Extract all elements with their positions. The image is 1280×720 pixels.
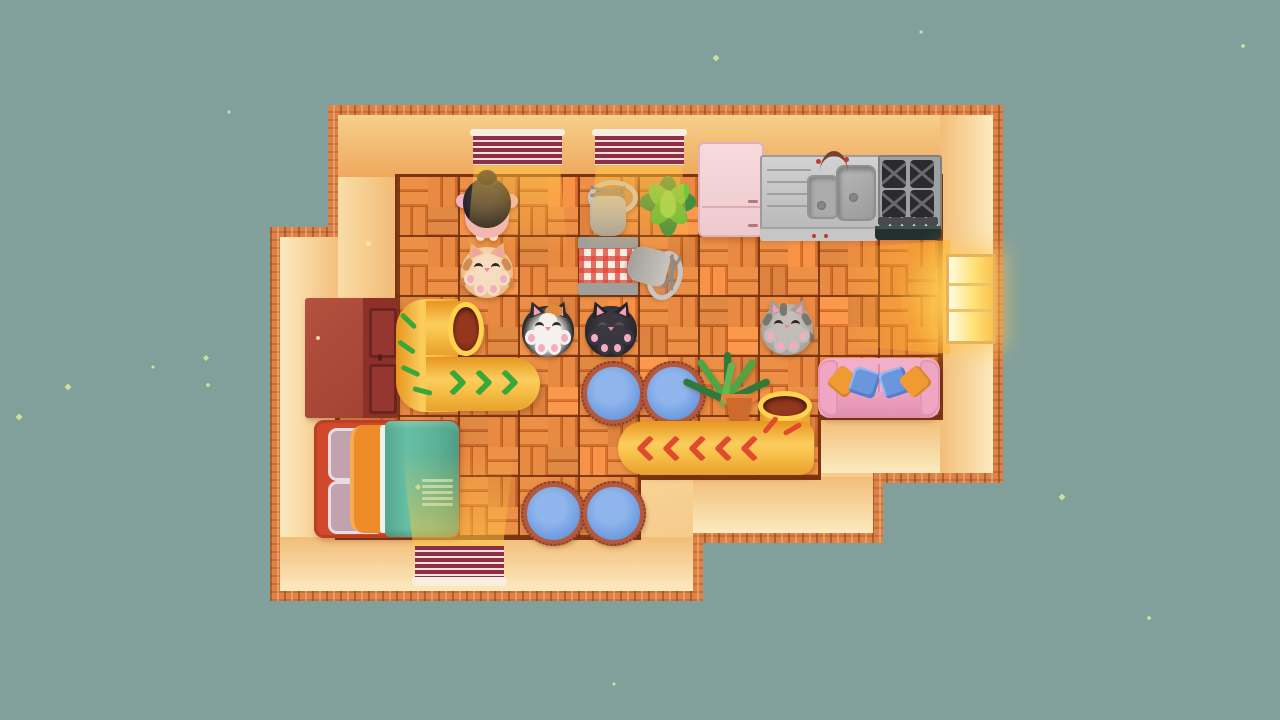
floor-cell: [938, 267, 940, 297]
floor-cell: [548, 387, 578, 417]
kitchen-sink: [760, 153, 878, 239]
calico-cat[interactable]: [519, 299, 577, 357]
sink-drain: [817, 201, 826, 210]
game-scene: [0, 0, 1280, 720]
floor-cell: [548, 237, 578, 267]
floor-cell: [818, 267, 848, 297]
blind-bar: [470, 129, 565, 136]
floor-cell: [878, 297, 908, 327]
window-pane-divider: [949, 309, 993, 312]
floor-cell: [698, 237, 728, 267]
oven-front: [875, 226, 941, 240]
stove-burner: [910, 190, 934, 218]
wardrobe-door-panel: [369, 364, 397, 414]
stove-burner: [882, 190, 906, 218]
faucet-knob: [844, 157, 849, 162]
cat-closed-eye: [474, 263, 483, 272]
floor-cell: [548, 267, 578, 297]
blind-bar: [592, 129, 687, 136]
cat-tunnel-red[interactable]: [618, 391, 814, 475]
cabinet-knob: [812, 234, 816, 238]
sink-basin-small: [807, 175, 838, 219]
sparkle-star: [612, 682, 616, 686]
drainboard-lines: [767, 169, 811, 217]
floor-cell: [458, 447, 488, 477]
floor-cell: [638, 327, 668, 357]
person-hair-bun: [477, 170, 497, 188]
floor-cell: [758, 267, 788, 297]
floor-cell: [908, 297, 938, 327]
cat-closed-eye: [535, 322, 544, 331]
wardrobe-front: [363, 298, 398, 418]
cat-paw: [535, 340, 548, 355]
stove-burner: [882, 160, 906, 188]
stove-burner: [910, 160, 934, 188]
window-light-stripe: [422, 479, 453, 482]
floor-cushion[interactable]: [521, 481, 586, 546]
fridge-divider: [702, 206, 760, 208]
floor-cell: [488, 477, 518, 507]
cat-paw: [548, 340, 561, 355]
wall-sparkle-dot: [366, 241, 371, 246]
cat-closed-eye: [491, 263, 500, 272]
cat-paw: [787, 338, 800, 353]
wall-band-step: [693, 477, 873, 533]
cat-closed-eye: [552, 322, 561, 331]
window-blind-top-left: [470, 129, 565, 169]
floor-cell: [428, 237, 458, 267]
floor-cell: [848, 237, 878, 267]
floor-cell: [728, 297, 758, 327]
cat-paw: [474, 281, 487, 296]
tunnel-opening: [758, 391, 812, 421]
floor-cell: [848, 297, 878, 327]
grey-tabby-cat[interactable]: [758, 297, 816, 355]
fallen-chair[interactable]: [584, 180, 632, 236]
floor-cell: [578, 447, 608, 477]
window-light-stripe: [422, 497, 453, 500]
floor-cell: [698, 267, 728, 297]
floor-cell: [728, 267, 758, 297]
floor-cell: [518, 177, 548, 207]
floor-cell: [518, 447, 548, 477]
sparkle-star: [16, 414, 23, 421]
window-light-stripe: [422, 503, 453, 506]
floor-cell: [728, 237, 758, 267]
sparkle-star: [227, 110, 231, 114]
blind-bar: [412, 577, 507, 586]
wardrobe-door-panel: [369, 308, 397, 358]
floor-cell: [548, 447, 578, 477]
cabinet-knob: [824, 234, 828, 238]
floor-cell: [938, 237, 940, 267]
floor-cell: [668, 327, 698, 357]
stove-controls: [878, 217, 938, 226]
floor-cell: [518, 267, 548, 297]
floor-cell: [638, 297, 668, 327]
floor-cell: [548, 177, 578, 207]
floor-cell: [398, 177, 428, 207]
floor-cell: [848, 267, 878, 297]
wardrobe[interactable]: [305, 298, 398, 418]
cat-closed-eye: [598, 322, 607, 331]
lit-side-window: [946, 254, 996, 344]
floor-cell: [548, 207, 578, 237]
floor-cell: [518, 417, 548, 447]
floor-cell: [668, 297, 698, 327]
floor-cell: [698, 297, 728, 327]
floor-cell: [488, 507, 518, 537]
floor-cell: [428, 177, 458, 207]
window-light-stripe: [422, 485, 453, 488]
sparkle-star: [206, 383, 211, 388]
cat-stripe: [780, 303, 787, 316]
sparkle-star: [1147, 616, 1152, 621]
wall-sparkle-dot: [316, 336, 320, 340]
faucet-knob: [816, 159, 821, 164]
floor-cell: [518, 237, 548, 267]
floor-cell: [818, 237, 848, 267]
floor-cell: [428, 267, 458, 297]
sparkle-star: [919, 30, 923, 34]
cat-closed-eye: [774, 320, 783, 329]
bed[interactable]: [314, 418, 462, 540]
blind-slats: [415, 546, 504, 577]
sparkle-star: [203, 355, 209, 361]
floor-cell: [458, 507, 488, 537]
floor-cell: [548, 417, 578, 447]
cat-closed-eye: [791, 320, 800, 329]
floor-cell: [788, 357, 818, 387]
orange-tabby-cat[interactable]: [458, 240, 516, 298]
window-blind-bottom: [412, 546, 507, 588]
sparkle-star: [151, 365, 155, 369]
sink-cabinet: [760, 227, 878, 241]
floor-cell: [818, 297, 848, 327]
blind-slats: [595, 136, 684, 165]
floor-cell: [458, 417, 488, 447]
cat-paw: [487, 281, 500, 296]
sink-drain: [849, 193, 858, 202]
fridge-handle: [748, 224, 758, 227]
cat-paw: [611, 340, 624, 355]
pink-couch[interactable]: [818, 352, 940, 420]
person-top-view[interactable]: [456, 170, 518, 242]
floor-cell: [788, 237, 818, 267]
blind-slats: [473, 136, 562, 165]
sparkle-star: [65, 384, 72, 391]
floor-cell: [878, 267, 908, 297]
black-cat[interactable]: [582, 299, 640, 357]
sparkle-star: [1241, 44, 1246, 49]
floor-cell: [788, 267, 818, 297]
window-blind-top-right: [592, 129, 687, 169]
window-light-stripe: [422, 491, 453, 494]
floor-cell: [518, 207, 548, 237]
floor-cell: [398, 207, 428, 237]
floor-cell: [488, 447, 518, 477]
floor-cell: [878, 237, 908, 267]
fridge-handle: [748, 200, 758, 203]
floor-cell: [428, 207, 458, 237]
fridge: [698, 142, 764, 237]
floor-cell: [758, 237, 788, 267]
cat-closed-eye: [615, 322, 624, 331]
floor-cell: [548, 357, 578, 387]
chair-cross-bar: [670, 254, 674, 290]
floor-cell: [398, 267, 428, 297]
chair-seat: [590, 196, 626, 236]
floor-cell: [908, 267, 938, 297]
floor-cell: [488, 417, 518, 447]
house-plant[interactable]: [642, 178, 694, 234]
cat-paw: [774, 338, 787, 353]
sparkle-star: [713, 55, 720, 62]
plant-leaf: [660, 190, 676, 218]
floor-cell: [398, 237, 428, 267]
floor-cell: [938, 297, 940, 327]
window-pane-divider: [949, 283, 993, 286]
floor-cushion[interactable]: [581, 481, 646, 546]
wardrobe-keyhole: [378, 354, 382, 361]
floor-cell: [908, 237, 938, 267]
stove: [878, 153, 940, 240]
wall-band-right-lower: [818, 417, 940, 473]
cat-paw: [598, 340, 611, 355]
tunnel-opening: [448, 302, 484, 356]
sparkle-star: [1059, 494, 1066, 501]
floor-cell: [458, 477, 488, 507]
wardrobe-top: [305, 298, 365, 418]
